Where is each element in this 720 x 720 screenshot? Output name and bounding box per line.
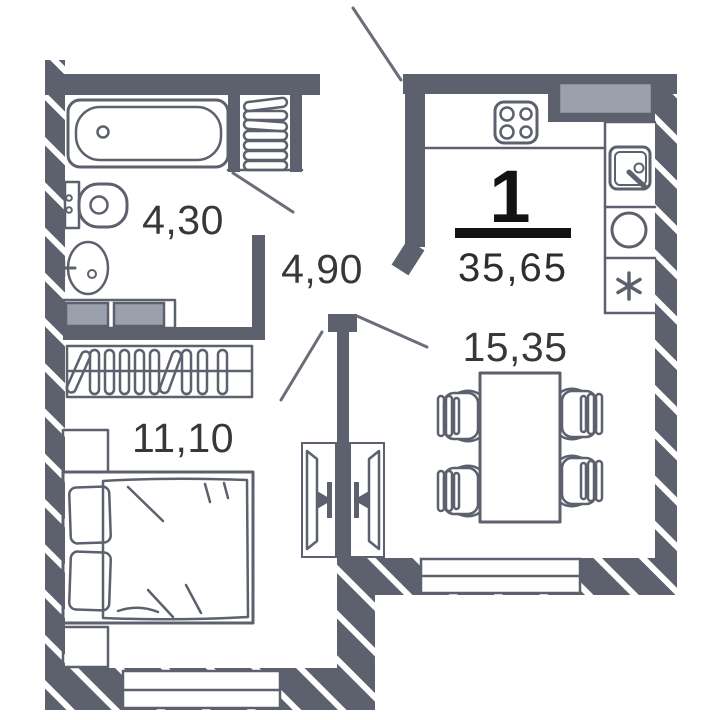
tv-icon	[302, 443, 336, 557]
nightstand-icon	[63, 627, 108, 667]
door-swing-icon-living	[357, 316, 427, 347]
wall-partition-cap	[328, 314, 357, 332]
stove-icon	[495, 102, 537, 143]
chair-icon	[561, 456, 602, 507]
apartment-summary: 1 35,65	[455, 155, 571, 290]
wardrobe-icon	[65, 346, 252, 397]
door-swing-icon-bathroom	[233, 173, 293, 212]
total-area-label: 35,65	[458, 246, 568, 290]
window-icon	[421, 559, 580, 593]
summary-divider	[455, 228, 571, 238]
nightstand-icon	[63, 430, 108, 472]
door-swing-icon-entry	[353, 8, 401, 80]
chair-icon	[438, 391, 479, 442]
bedroom-area-label: 11,10	[132, 415, 234, 461]
wall-top-left	[45, 74, 320, 95]
walls	[45, 60, 677, 710]
chair-icon	[438, 466, 479, 517]
wall-right	[655, 74, 677, 560]
living-kitchen-area-label: 15,35	[462, 324, 567, 370]
wall-kitchen-chamfer	[400, 245, 416, 270]
bed-icon	[63, 472, 253, 623]
tv-icon	[350, 443, 384, 557]
wall-tv-partition	[337, 330, 349, 560]
fridge-icon	[618, 273, 640, 299]
hallway-area-label: 4,90	[281, 246, 363, 292]
kitchen-sink-icon	[610, 147, 650, 189]
labels: 4,30 4,90 11,10 15,35 1 35,65	[132, 155, 571, 461]
toilet-icon	[65, 182, 127, 228]
bathroom-area-label: 4,30	[142, 197, 224, 243]
dining-table-icon	[480, 373, 560, 522]
bedroom-fixtures	[63, 346, 253, 667]
rooms-count-label: 1	[489, 155, 530, 238]
wall-kitchen-divider	[405, 94, 425, 247]
kitchen-cabinet-icon	[548, 74, 655, 122]
door-swing-icon-bedroom	[281, 332, 322, 400]
wall-bathroom-right	[252, 235, 265, 340]
window-icon	[123, 671, 280, 708]
washing-machine-icon	[612, 213, 646, 247]
towel-radiator-icon	[228, 95, 302, 172]
floor-plan-svg: 4,30 4,90 11,10 15,35 1 35,65	[0, 0, 720, 720]
chair-icon	[561, 389, 602, 440]
dining-group	[438, 373, 602, 522]
bathtub-icon	[68, 100, 228, 167]
doors	[233, 8, 427, 400]
laundry-boxes-icon	[63, 300, 175, 328]
floorplan-canvas: 4,30 4,90 11,10 15,35 1 35,65	[0, 0, 720, 720]
